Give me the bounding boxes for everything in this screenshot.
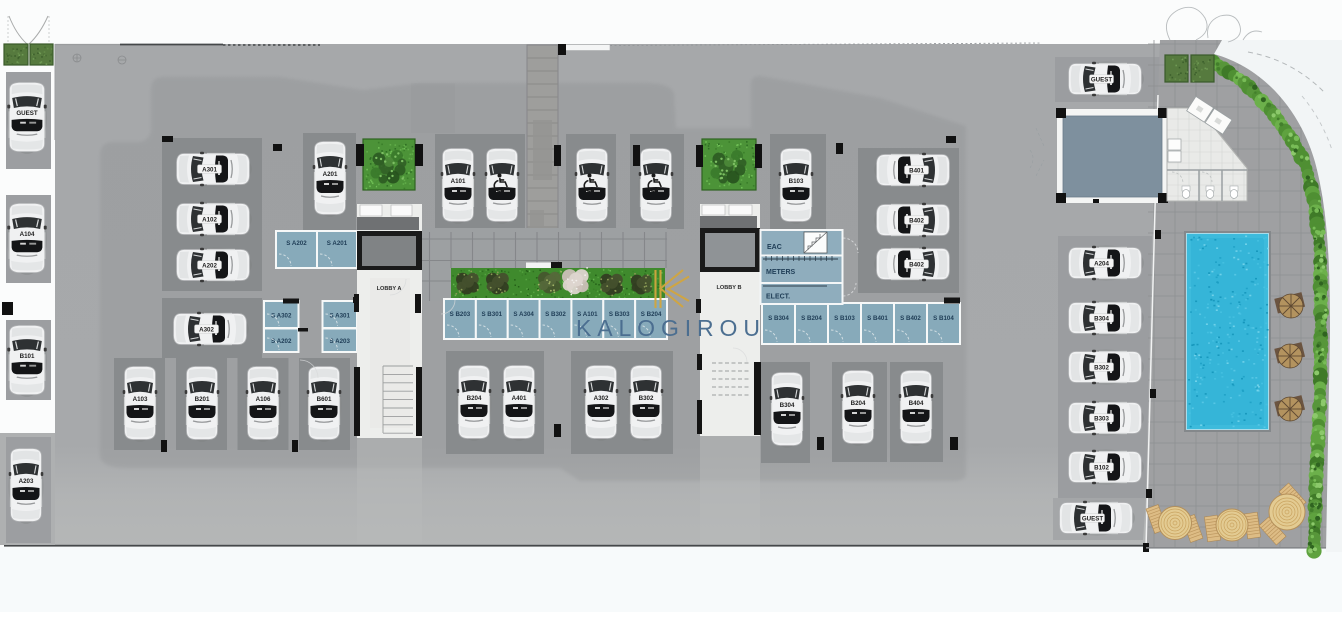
svg-text:S A203: S A203 — [330, 338, 351, 345]
svg-text:B402: B402 — [909, 217, 924, 224]
svg-text:S B204: S B204 — [801, 315, 822, 322]
svg-text:B401: B401 — [909, 167, 924, 174]
svg-text:A104: A104 — [20, 231, 35, 238]
svg-text:S A202: S A202 — [286, 240, 307, 247]
svg-text:B204: B204 — [851, 400, 866, 407]
svg-text:A301: A301 — [202, 166, 217, 173]
svg-text:A103: A103 — [133, 396, 148, 403]
svg-text:A106: A106 — [256, 396, 271, 403]
svg-text:B302: B302 — [1094, 364, 1109, 371]
svg-text:B302: B302 — [639, 395, 654, 402]
svg-text:LOBBY A: LOBBY A — [377, 286, 402, 292]
svg-text:A101: A101 — [451, 178, 466, 185]
svg-text:GUEST: GUEST — [16, 110, 38, 117]
svg-text:GUEST: GUEST — [1091, 76, 1113, 83]
svg-text:S A201: S A201 — [327, 240, 348, 247]
svg-text:S B301: S B301 — [481, 311, 502, 318]
svg-text:B201: B201 — [195, 396, 210, 403]
svg-text:B303: B303 — [1094, 415, 1109, 422]
svg-text:S B103: S B103 — [834, 315, 855, 322]
svg-text:GUEST: GUEST — [1082, 515, 1104, 522]
svg-text:B402: B402 — [909, 261, 924, 268]
svg-text:A302: A302 — [199, 326, 214, 333]
svg-text:B404: B404 — [909, 400, 924, 407]
svg-text:B103: B103 — [789, 178, 804, 185]
svg-text:B601: B601 — [317, 396, 332, 403]
svg-text:ELECT.: ELECT. — [766, 294, 790, 301]
svg-text:EAC: EAC — [767, 244, 782, 251]
svg-text:S B402: S B402 — [900, 315, 921, 322]
svg-text:S A301: S A301 — [330, 313, 351, 320]
svg-text:S B104: S B104 — [933, 315, 954, 322]
svg-text:B102: B102 — [1094, 464, 1109, 471]
svg-text:S A302: S A302 — [271, 313, 292, 320]
svg-text:S B401: S B401 — [867, 315, 888, 322]
svg-text:S B203: S B203 — [450, 311, 471, 318]
svg-text:A401: A401 — [512, 395, 527, 402]
svg-text:S A202: S A202 — [271, 338, 292, 345]
svg-text:METERS: METERS — [766, 269, 796, 276]
svg-text:A203: A203 — [19, 478, 34, 485]
svg-text:B101: B101 — [20, 353, 35, 360]
svg-text:B304: B304 — [780, 402, 795, 409]
svg-text:A102: A102 — [202, 216, 217, 223]
svg-text:B304: B304 — [1094, 315, 1109, 322]
svg-text:KALOGIROU: KALOGIROU — [576, 315, 766, 341]
svg-text:A202: A202 — [202, 262, 217, 269]
svg-text:A204: A204 — [1094, 260, 1109, 267]
svg-text:S B302: S B302 — [545, 311, 566, 318]
svg-text:LOBBY B: LOBBY B — [716, 285, 741, 291]
svg-text:A302: A302 — [594, 395, 609, 402]
svg-text:S B304: S B304 — [768, 315, 789, 322]
svg-text:B204: B204 — [467, 395, 482, 402]
svg-text:A201: A201 — [323, 171, 338, 178]
svg-text:S A304: S A304 — [513, 311, 534, 318]
